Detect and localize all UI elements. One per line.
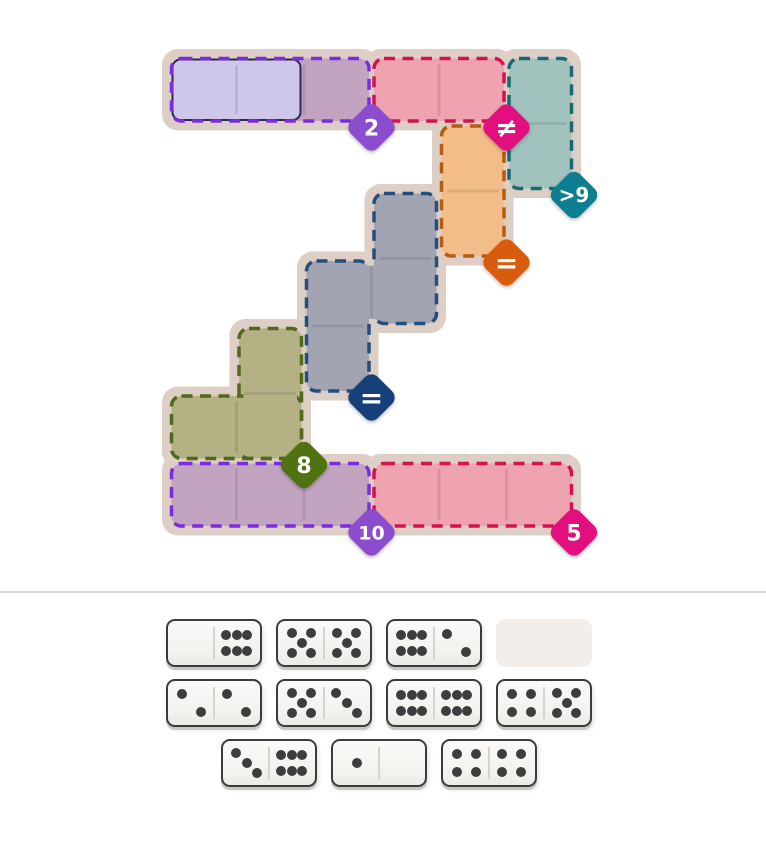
domino-divider: [213, 687, 215, 719]
pip: [407, 706, 417, 716]
domino-half-2: [215, 683, 258, 723]
domino-half-5: [280, 683, 323, 723]
pip: [342, 638, 352, 648]
domino-divider: [268, 747, 270, 779]
pip: [177, 689, 187, 699]
domino-divider: [213, 627, 215, 659]
pip: [442, 629, 452, 639]
domino-2-2[interactable]: [166, 679, 262, 727]
pip: [396, 646, 406, 656]
pip: [342, 698, 352, 708]
pip: [441, 706, 451, 716]
domino-half-3: [225, 743, 268, 783]
domino-half-5: [545, 683, 588, 723]
pip: [306, 648, 316, 658]
domino-tray: [0, 0, 766, 845]
domino-half-0: [380, 743, 423, 783]
pip: [332, 628, 342, 638]
pip: [471, 767, 481, 777]
pip: [417, 630, 427, 640]
domino-divider: [433, 627, 435, 659]
pip: [331, 688, 341, 698]
pip: [516, 767, 526, 777]
pip: [242, 758, 252, 768]
domino-4-4[interactable]: [441, 739, 537, 787]
pip: [252, 768, 262, 778]
pip: [526, 707, 536, 717]
pip: [287, 708, 297, 718]
pip: [452, 749, 462, 759]
domino-half-1: [335, 743, 378, 783]
pip: [497, 767, 507, 777]
pip: [297, 766, 307, 776]
pip: [407, 690, 417, 700]
pip: [297, 638, 307, 648]
domino-half-6: [390, 623, 433, 663]
pip: [396, 706, 406, 716]
pip: [242, 630, 252, 640]
domino-divider: [378, 747, 380, 779]
pip: [231, 748, 241, 758]
pip: [417, 690, 427, 700]
pip: [516, 749, 526, 759]
domino-half-5: [280, 623, 323, 663]
pip: [222, 689, 232, 699]
pip: [452, 767, 462, 777]
domino-divider: [488, 747, 490, 779]
domino-half-3: [325, 683, 368, 723]
pip: [461, 647, 471, 657]
pip: [507, 689, 517, 699]
pip: [417, 706, 427, 716]
pip: [332, 648, 342, 658]
pip: [306, 688, 316, 698]
pip: [287, 648, 297, 658]
pip: [407, 646, 417, 656]
pip: [232, 630, 242, 640]
pip: [396, 630, 406, 640]
pip: [287, 750, 297, 760]
domino-6-2[interactable]: [386, 619, 482, 667]
domino-half-4: [500, 683, 543, 723]
pip: [526, 689, 536, 699]
domino-divider: [543, 687, 545, 719]
pip: [441, 690, 451, 700]
pip: [221, 630, 231, 640]
empty-tray-slot[interactable]: [496, 619, 592, 667]
pip: [351, 628, 361, 638]
pip: [306, 628, 316, 638]
pip: [196, 707, 206, 717]
pip: [276, 750, 286, 760]
pip: [241, 707, 251, 717]
pip: [221, 646, 231, 656]
domino-half-5: [325, 623, 368, 663]
pip: [306, 708, 316, 718]
pip: [287, 766, 297, 776]
pip: [396, 690, 406, 700]
pip: [571, 688, 581, 698]
domino-divider: [323, 687, 325, 719]
domino-half-2: [435, 623, 478, 663]
pip: [552, 708, 562, 718]
pip: [452, 706, 462, 716]
domino-5-5[interactable]: [276, 619, 372, 667]
pip: [232, 646, 242, 656]
pip: [276, 766, 286, 776]
pip: [287, 628, 297, 638]
domino-half-6: [215, 623, 258, 663]
domino-half-4: [445, 743, 488, 783]
domino-3-6[interactable]: [221, 739, 317, 787]
pip: [351, 648, 361, 658]
domino-1-0[interactable]: [331, 739, 427, 787]
domino-half-6: [270, 743, 313, 783]
domino-divider: [323, 627, 325, 659]
pip: [462, 706, 472, 716]
domino-puzzle-app: 2≠>9==8105: [0, 0, 766, 845]
pip: [352, 758, 362, 768]
pip: [552, 688, 562, 698]
pip: [452, 690, 462, 700]
pip: [497, 749, 507, 759]
pip: [297, 698, 307, 708]
pip: [287, 688, 297, 698]
domino-half-2: [170, 683, 213, 723]
pip: [297, 750, 307, 760]
pip: [462, 690, 472, 700]
pip: [407, 630, 417, 640]
pip: [571, 708, 581, 718]
pip: [417, 646, 427, 656]
pip: [242, 646, 252, 656]
pip: [352, 708, 362, 718]
domino-divider: [433, 687, 435, 719]
pip: [507, 707, 517, 717]
domino-5-3[interactable]: [276, 679, 372, 727]
domino-half-4: [490, 743, 533, 783]
domino-6-6[interactable]: [386, 679, 482, 727]
domino-4-5[interactable]: [496, 679, 592, 727]
domino-0-6[interactable]: [166, 619, 262, 667]
pip: [562, 698, 572, 708]
domino-half-0: [170, 623, 213, 663]
pip: [471, 749, 481, 759]
domino-half-6: [390, 683, 433, 723]
domino-half-6: [435, 683, 478, 723]
